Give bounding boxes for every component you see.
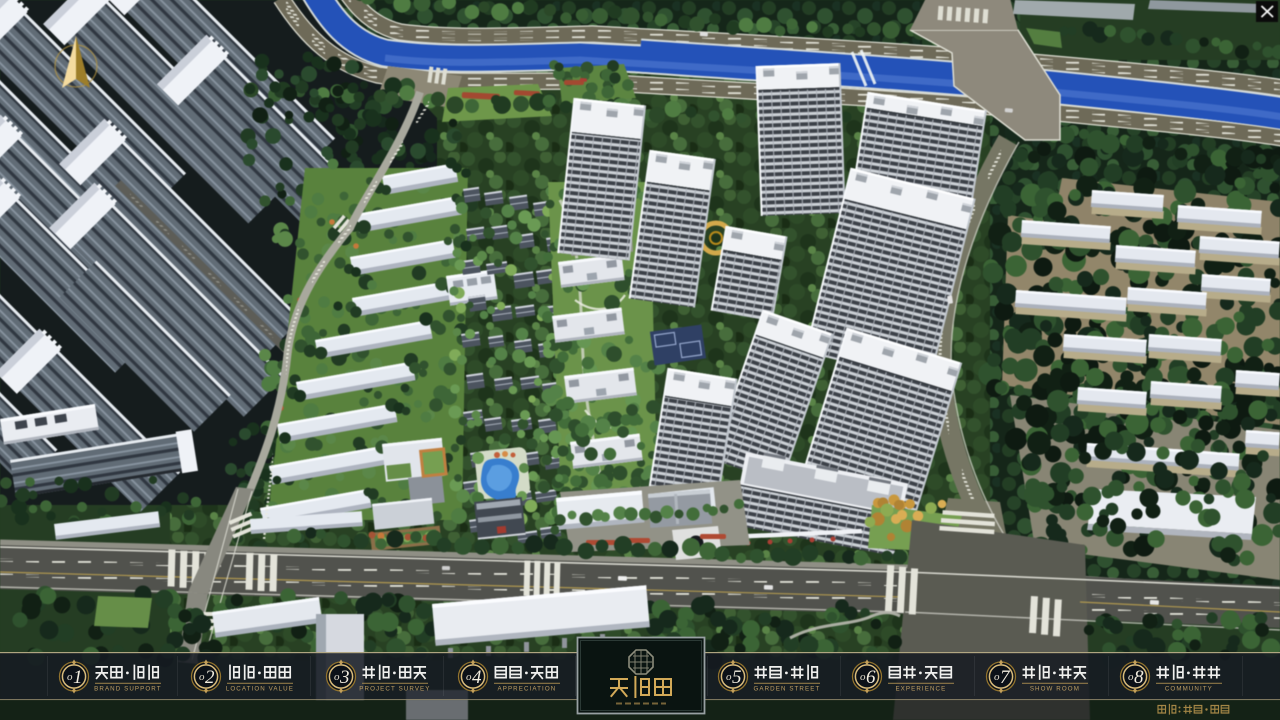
svg-text:6: 6 (866, 667, 876, 688)
svg-text:8: 8 (1134, 667, 1144, 688)
svg-text:PROJECT SURVEY: PROJECT SURVEY (359, 686, 430, 693)
svg-text:7: 7 (1000, 667, 1011, 688)
svg-text:5: 5 (732, 667, 742, 688)
svg-text:1: 1 (73, 667, 83, 688)
svg-text:COMMUNITY: COMMUNITY (1165, 686, 1213, 693)
svg-text:SHOW ROOM: SHOW ROOM (1030, 686, 1080, 693)
svg-text:3: 3 (339, 667, 350, 688)
svg-text:BRAND SUPPORT: BRAND SUPPORT (94, 686, 161, 693)
svg-text:2: 2 (205, 667, 215, 688)
svg-text:APPRECIATION: APPRECIATION (497, 686, 556, 693)
svg-text:4: 4 (472, 667, 482, 688)
svg-text:GARDEN STREET: GARDEN STREET (753, 686, 820, 693)
svg-text:LOCATION VALUE: LOCATION VALUE (226, 686, 294, 693)
svg-text:EXPERIENCE: EXPERIENCE (895, 686, 946, 693)
